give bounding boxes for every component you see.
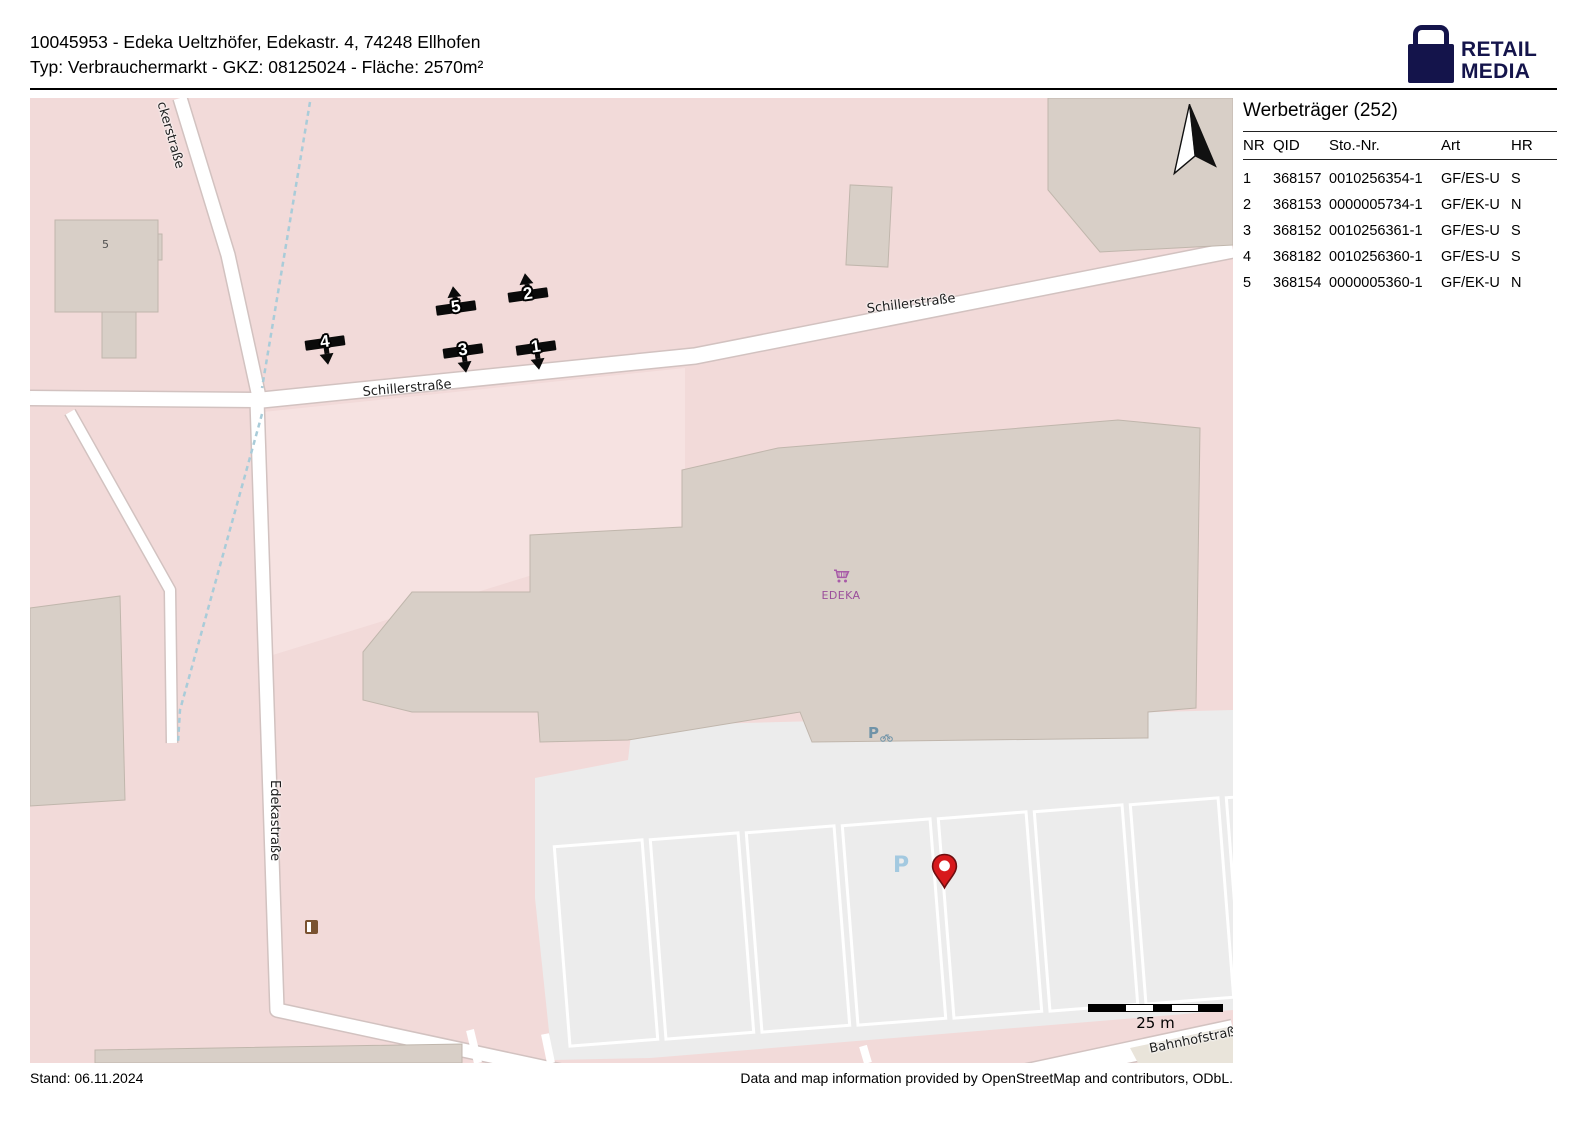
amenity-icon (305, 920, 318, 934)
cell-sto: 0010256360-1 (1329, 249, 1441, 265)
bike-parking-label: P (868, 724, 879, 742)
cell-qid: 368153 (1273, 197, 1329, 213)
cell-nr: 4 (1243, 249, 1273, 265)
map-canvas[interactable]: ckerstraße Schillerstraße Schillerstraße… (30, 98, 1233, 1063)
cell-art: GF/ES-U (1441, 249, 1511, 265)
cell-art: GF/ES-U (1441, 223, 1511, 239)
cell-sto: 0000005360-1 (1329, 275, 1441, 291)
table-row: 5 368154 0000005360-1 GF/EK-U N (1243, 270, 1557, 296)
cell-qid: 368152 (1273, 223, 1329, 239)
cell-nr: 5 (1243, 275, 1273, 291)
store-subtitle: Typ: Verbrauchermarkt - GKZ: 08125024 - … (30, 55, 483, 80)
bike-parking-poi: P (868, 724, 893, 742)
cell-qid: 368154 (1273, 275, 1329, 291)
location-pin-icon[interactable] (931, 853, 958, 890)
shopping-bag-icon (1408, 25, 1454, 83)
panel-title: Werbeträger (252) (1243, 100, 1557, 122)
map-scale: 25 m (1088, 1004, 1223, 1032)
footer-date: Stand: 06.11.2024 (30, 1070, 143, 1086)
north-arrow-icon (1167, 100, 1220, 179)
scale-label: 25 m (1088, 1014, 1223, 1032)
cell-hr: N (1511, 275, 1547, 291)
edeka-poi: EDEKA (808, 568, 874, 602)
shopping-cart-icon (833, 569, 850, 583)
cell-nr: 2 (1243, 197, 1273, 213)
logo-line2: MEDIA (1461, 61, 1537, 83)
cell-nr: 1 (1243, 171, 1273, 187)
store-title: 10045953 - Edeka Ueltzhöfer, Edekastr. 4… (30, 30, 483, 55)
retail-media-logo: RETAIL MEDIA (1408, 25, 1537, 83)
col-header-hr: HR (1511, 137, 1547, 154)
footer-attribution: Data and map information provided by Ope… (740, 1070, 1233, 1086)
table-row: 2 368153 0000005734-1 GF/EK-U N (1243, 192, 1557, 218)
map-base-layer (30, 98, 1233, 1063)
col-header-nr: NR (1243, 137, 1273, 154)
cell-sto: 0000005734-1 (1329, 197, 1441, 213)
bicycle-icon (880, 733, 893, 742)
cell-sto: 0010256354-1 (1329, 171, 1441, 187)
cell-sto: 0010256361-1 (1329, 223, 1441, 239)
parking-label: P (893, 853, 909, 878)
table-row: 4 368182 0010256360-1 GF/ES-U S (1243, 244, 1557, 270)
cell-qid: 368182 (1273, 249, 1329, 265)
table-row: 3 368152 0010256361-1 GF/ES-U S (1243, 218, 1557, 244)
table-row: 1 368157 0010256354-1 GF/ES-U S (1243, 166, 1557, 192)
scale-bar (1088, 1004, 1223, 1012)
cell-art: GF/EK-U (1441, 275, 1511, 291)
cell-nr: 3 (1243, 223, 1273, 239)
report-header: 10045953 - Edeka Ueltzhöfer, Edekastr. 4… (30, 30, 483, 80)
edeka-label: EDEKA (808, 589, 874, 602)
table-header-row: NR QID Sto.-Nr. Art HR (1243, 132, 1557, 159)
cell-art: GF/EK-U (1441, 197, 1511, 213)
cell-qid: 368157 (1273, 171, 1329, 187)
building-number-label: 5 (102, 238, 109, 251)
cell-hr: S (1511, 171, 1547, 187)
col-header-qid: QID (1273, 137, 1329, 154)
report-page: 10045953 - Edeka Ueltzhöfer, Edekastr. 4… (0, 0, 1587, 1123)
col-header-art: Art (1441, 137, 1511, 154)
header-divider (30, 88, 1557, 90)
street-label-edekastrasse: Edekastraße (267, 780, 282, 861)
cell-hr: S (1511, 249, 1547, 265)
cell-hr: N (1511, 197, 1547, 213)
logo-line1: RETAIL (1461, 39, 1537, 61)
col-header-sto: Sto.-Nr. (1329, 137, 1441, 154)
cell-art: GF/ES-U (1441, 171, 1511, 187)
werbetraeger-panel: Werbeträger (252) NR QID Sto.-Nr. Art HR… (1243, 100, 1557, 296)
cell-hr: S (1511, 223, 1547, 239)
